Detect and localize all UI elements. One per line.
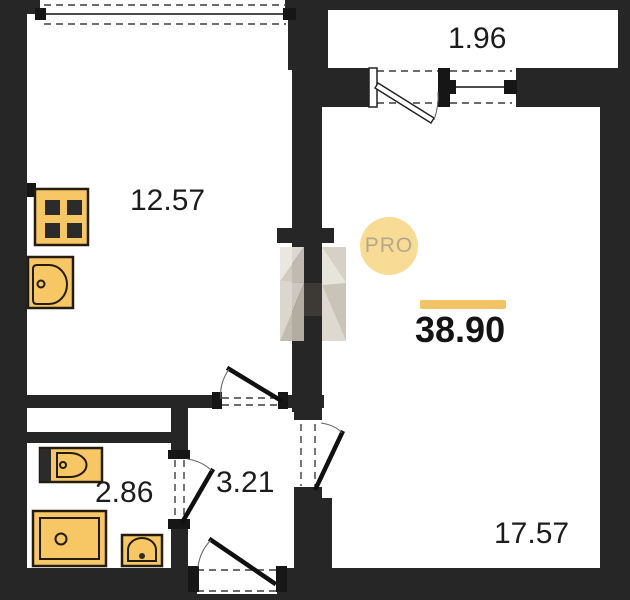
bathroom-area-label: 2.86: [95, 478, 153, 508]
hall-living-door: [301, 423, 342, 488]
plan-linework: [0, 0, 630, 600]
pro-badge: PRO: [360, 217, 418, 275]
washbasin-icon: [122, 535, 162, 566]
stove-icon: [27, 183, 88, 245]
faceted-logo-icon: [280, 247, 346, 341]
kitchen-door: [212, 369, 288, 409]
entrance-door: [188, 540, 287, 594]
balcony-door: [369, 68, 450, 123]
kitchen-window: [35, 5, 296, 24]
toilet-icon: [40, 448, 102, 482]
balcony-window: [444, 71, 517, 103]
kitchen-sink-icon: [28, 257, 73, 308]
floor-plan: 12.57 1.96 17.57 3.21 2.86 38.90 PRO: [0, 0, 630, 600]
pro-badge-label: PRO: [365, 234, 414, 258]
shower-tray-icon: [33, 511, 106, 566]
total-area-label: 38.90: [415, 312, 505, 348]
living-area-label: 17.57: [494, 519, 569, 549]
total-area-accent-bar: [420, 300, 506, 309]
hallway-area-label: 3.21: [216, 468, 274, 498]
balcony-area-label: 1.96: [448, 24, 506, 54]
kitchen-area-label: 12.57: [130, 186, 205, 216]
bathroom-door: [168, 450, 212, 529]
